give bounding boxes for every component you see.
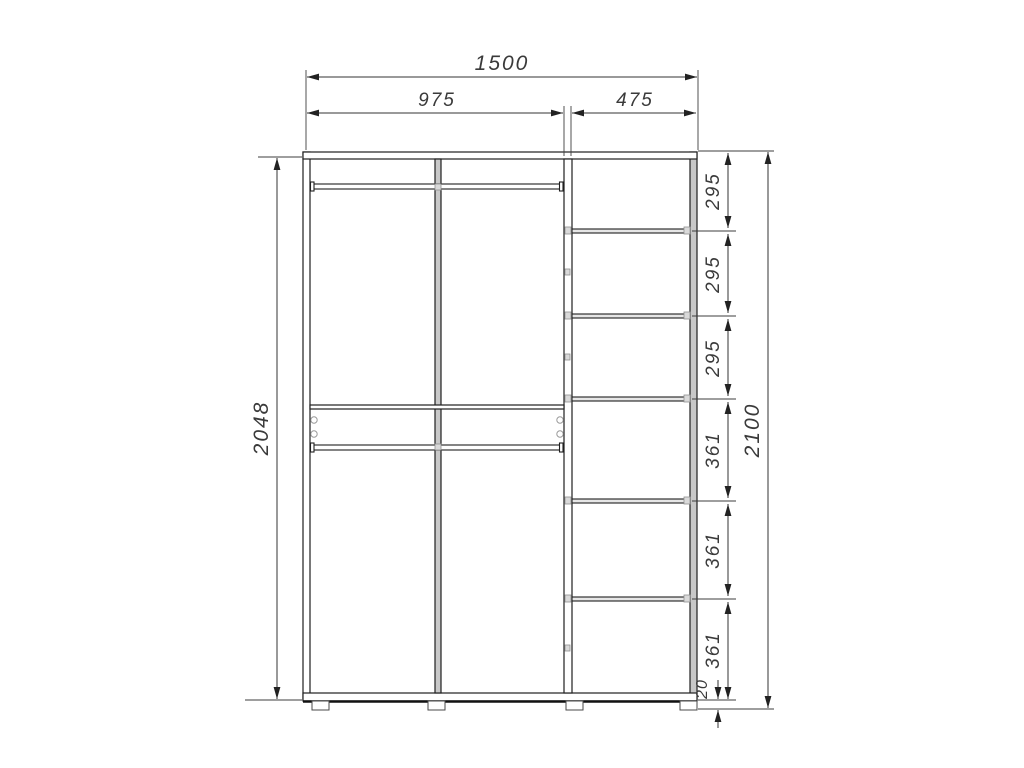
fitting-icon	[684, 595, 690, 602]
lower-rail-left-cap	[311, 443, 315, 452]
dim-side-panel-height: 2048	[250, 158, 277, 699]
right-section-shelves	[572, 229, 690, 601]
dim-left-section-width: 975	[307, 90, 563, 113]
section-divider-panel	[564, 159, 572, 693]
fitting-icon	[565, 227, 571, 234]
fitting-icon	[684, 395, 690, 402]
fitting-icon	[684, 312, 690, 319]
shelf-5	[572, 597, 690, 601]
fitting-icon	[684, 497, 690, 504]
drawing-canvas: 1500 975 475 2048 2100	[0, 0, 1024, 768]
dim-gap-2-label: 295	[703, 255, 724, 294]
shelf-2	[572, 314, 690, 318]
bottom-panel	[303, 693, 697, 701]
dim-gap-1-label: 295	[703, 172, 724, 211]
fitting-icon	[435, 444, 441, 450]
top-panel	[303, 152, 697, 159]
dim-total-height-label: 2100	[741, 403, 764, 459]
dim-gap-6-label: 361	[703, 631, 724, 669]
fitting-icon	[565, 269, 570, 275]
dim-plinth-height: 20	[694, 679, 718, 728]
dim-gap-3-label: 295	[703, 339, 724, 378]
bracket-icon	[311, 431, 317, 437]
fitting-icon	[565, 497, 571, 504]
bracket-icon	[311, 417, 317, 423]
dim-side-panel-height-label: 2048	[250, 401, 273, 457]
foot	[428, 701, 445, 710]
dim-right-section-label: 475	[616, 90, 654, 111]
shelf-1	[572, 229, 690, 233]
cabinet-carcass	[303, 152, 697, 710]
foot	[566, 701, 583, 710]
fitting-icon	[565, 595, 571, 602]
fitting-icon	[565, 312, 571, 319]
bracket-icon	[557, 431, 563, 437]
dim-gap-5-label: 361	[703, 531, 724, 569]
fitting-icon	[684, 227, 690, 234]
foot	[680, 701, 697, 710]
dim-left-section-label: 975	[418, 90, 456, 111]
shelf-4	[572, 499, 690, 503]
dim-gap-4-label: 361	[703, 431, 724, 469]
left-side-panel	[303, 152, 310, 700]
bracket-icon	[557, 417, 563, 423]
shelf-3	[572, 397, 690, 401]
wardrobe-technical-drawing: 1500 975 475 2048 2100	[0, 0, 1024, 768]
dim-total-width: 1500	[307, 52, 697, 77]
lower-rail-right-cap	[560, 443, 564, 452]
dim-total-height: 2100	[741, 152, 768, 708]
left-section-center-divider	[435, 159, 441, 693]
right-side-panel	[690, 152, 697, 700]
dim-total-width-label: 1500	[475, 52, 530, 75]
upper-rail-right-cap	[560, 182, 564, 191]
upper-rail-left-cap	[311, 182, 315, 191]
dim-right-section-width: 475	[572, 90, 696, 113]
foot	[312, 701, 329, 710]
fitting-icon	[565, 395, 571, 402]
fitting-icon	[565, 354, 570, 360]
fitting-icon	[435, 184, 441, 190]
dim-plinth-height-label: 20	[694, 679, 711, 700]
dim-shelf-gap-chain: 295 295 295 361 361 361	[703, 153, 728, 699]
left-section-mid-shelf	[310, 405, 564, 409]
fitting-icon	[565, 645, 570, 651]
